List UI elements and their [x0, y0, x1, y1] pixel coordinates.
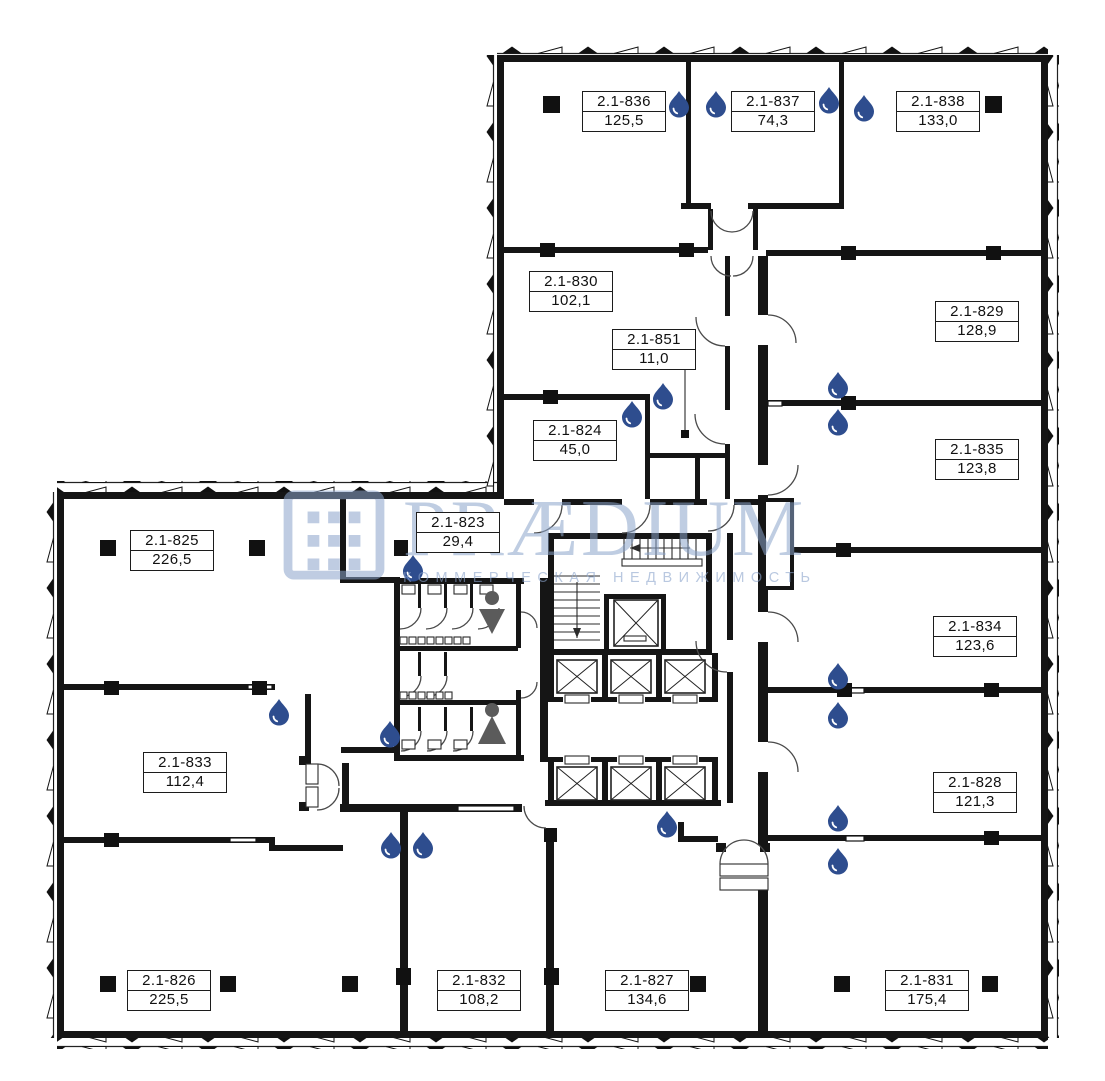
room-label-2.1-837[interactable]: 2.1-837 74,3	[731, 91, 815, 132]
male-wc-icon	[479, 591, 505, 634]
window-band-bottom	[57, 1038, 1048, 1049]
water-drop-icon	[403, 555, 423, 582]
room-number: 2.1-830	[530, 272, 612, 292]
water-drop-icon	[828, 848, 848, 875]
room-area: 112,4	[144, 773, 226, 792]
water-drop-icon	[828, 702, 848, 729]
room-label-2.1-825[interactable]: 2.1-825 226,5	[130, 530, 214, 571]
room-area: 225,5	[128, 991, 210, 1010]
water-drop-icon	[828, 409, 848, 436]
water-drop-icon	[269, 699, 289, 726]
water-drop-icon	[828, 663, 848, 690]
room-area: 123,6	[934, 637, 1016, 656]
window-band-left-upper	[486, 55, 497, 499]
room-label-2.1-834[interactable]: 2.1-834 123,6	[933, 616, 1017, 657]
room-area: 29,4	[417, 533, 499, 552]
elevator-icon	[557, 660, 597, 693]
room-number: 2.1-835	[936, 440, 1018, 460]
room-number: 2.1-828	[934, 773, 1016, 793]
water-drop-icon	[828, 372, 848, 399]
room-label-2.1-833[interactable]: 2.1-833 112,4	[143, 752, 227, 793]
room-area: 11,0	[613, 350, 695, 369]
room-area: 74,3	[732, 112, 814, 131]
room-number: 2.1-827	[606, 971, 688, 991]
elevator-icon	[665, 660, 705, 693]
window-band-lower-top	[57, 481, 504, 492]
room-area: 175,4	[886, 991, 968, 1010]
room-label-2.1-835[interactable]: 2.1-835 123,8	[935, 439, 1019, 480]
water-drop-icon	[828, 805, 848, 832]
window-band-right	[1048, 55, 1059, 1038]
water-drop-icon	[653, 383, 673, 410]
room-number: 2.1-826	[128, 971, 210, 991]
room-label-2.1-829[interactable]: 2.1-829 128,9	[935, 301, 1019, 342]
room-area: 133,0	[897, 112, 979, 131]
room-area: 128,9	[936, 322, 1018, 341]
room-number: 2.1-836	[583, 92, 665, 112]
water-drop-icon	[819, 87, 839, 114]
wc-fixtures	[400, 584, 506, 749]
floor-plan-page: PRÆDIUM КОММЕРЧЕСКАЯ НЕДВИЖИМОСТЬ 2.1-83…	[0, 0, 1105, 1081]
room-number: 2.1-833	[144, 753, 226, 773]
window-band-top	[497, 44, 1048, 55]
room-area: 123,8	[936, 460, 1018, 479]
room-number: 2.1-837	[732, 92, 814, 112]
room-area: 125,5	[583, 112, 665, 131]
room-number: 2.1-851	[613, 330, 695, 350]
elevator-icon	[614, 600, 658, 646]
leader-line-851	[681, 370, 689, 438]
water-drop-icon	[413, 832, 433, 859]
water-drop-icon	[657, 811, 677, 838]
room-number: 2.1-834	[934, 617, 1016, 637]
room-number: 2.1-831	[886, 971, 968, 991]
room-label-2.1-831[interactable]: 2.1-831 175,4	[885, 970, 969, 1011]
room-label-2.1-836[interactable]: 2.1-836 125,5	[582, 91, 666, 132]
room-area: 226,5	[131, 551, 213, 570]
female-wc-icon	[478, 703, 506, 744]
room-label-2.1-838[interactable]: 2.1-838 133,0	[896, 91, 980, 132]
room-number: 2.1-829	[936, 302, 1018, 322]
room-area: 121,3	[934, 793, 1016, 812]
room-label-2.1-851[interactable]: 2.1-851 11,0	[612, 329, 696, 370]
room-number: 2.1-823	[417, 513, 499, 533]
room-number: 2.1-824	[534, 421, 616, 441]
elevator-icon	[611, 767, 651, 800]
room-area: 134,6	[606, 991, 688, 1010]
elevator-icon	[665, 767, 705, 800]
room-number: 2.1-832	[438, 971, 520, 991]
room-area: 45,0	[534, 441, 616, 460]
room-number: 2.1-838	[897, 92, 979, 112]
room-area: 102,1	[530, 292, 612, 311]
room-label-2.1-830[interactable]: 2.1-830 102,1	[529, 271, 613, 312]
window-band-left-lower	[46, 492, 57, 1038]
room-label-2.1-832[interactable]: 2.1-832 108,2	[437, 970, 521, 1011]
water-drop-icon	[381, 832, 401, 859]
room-number: 2.1-825	[131, 531, 213, 551]
elevator-icon	[557, 767, 597, 800]
room-label-2.1-828[interactable]: 2.1-828 121,3	[933, 772, 1017, 813]
room-label-2.1-824[interactable]: 2.1-824 45,0	[533, 420, 617, 461]
room-label-2.1-827[interactable]: 2.1-827 134,6	[605, 970, 689, 1011]
water-drop-icon	[854, 95, 874, 122]
elevator-icon	[611, 660, 651, 693]
room-area: 108,2	[438, 991, 520, 1010]
room-label-2.1-823[interactable]: 2.1-823 29,4	[416, 512, 500, 553]
water-drop-icon	[706, 91, 726, 118]
water-drop-icon	[622, 401, 642, 428]
room-label-2.1-826[interactable]: 2.1-826 225,5	[127, 970, 211, 1011]
